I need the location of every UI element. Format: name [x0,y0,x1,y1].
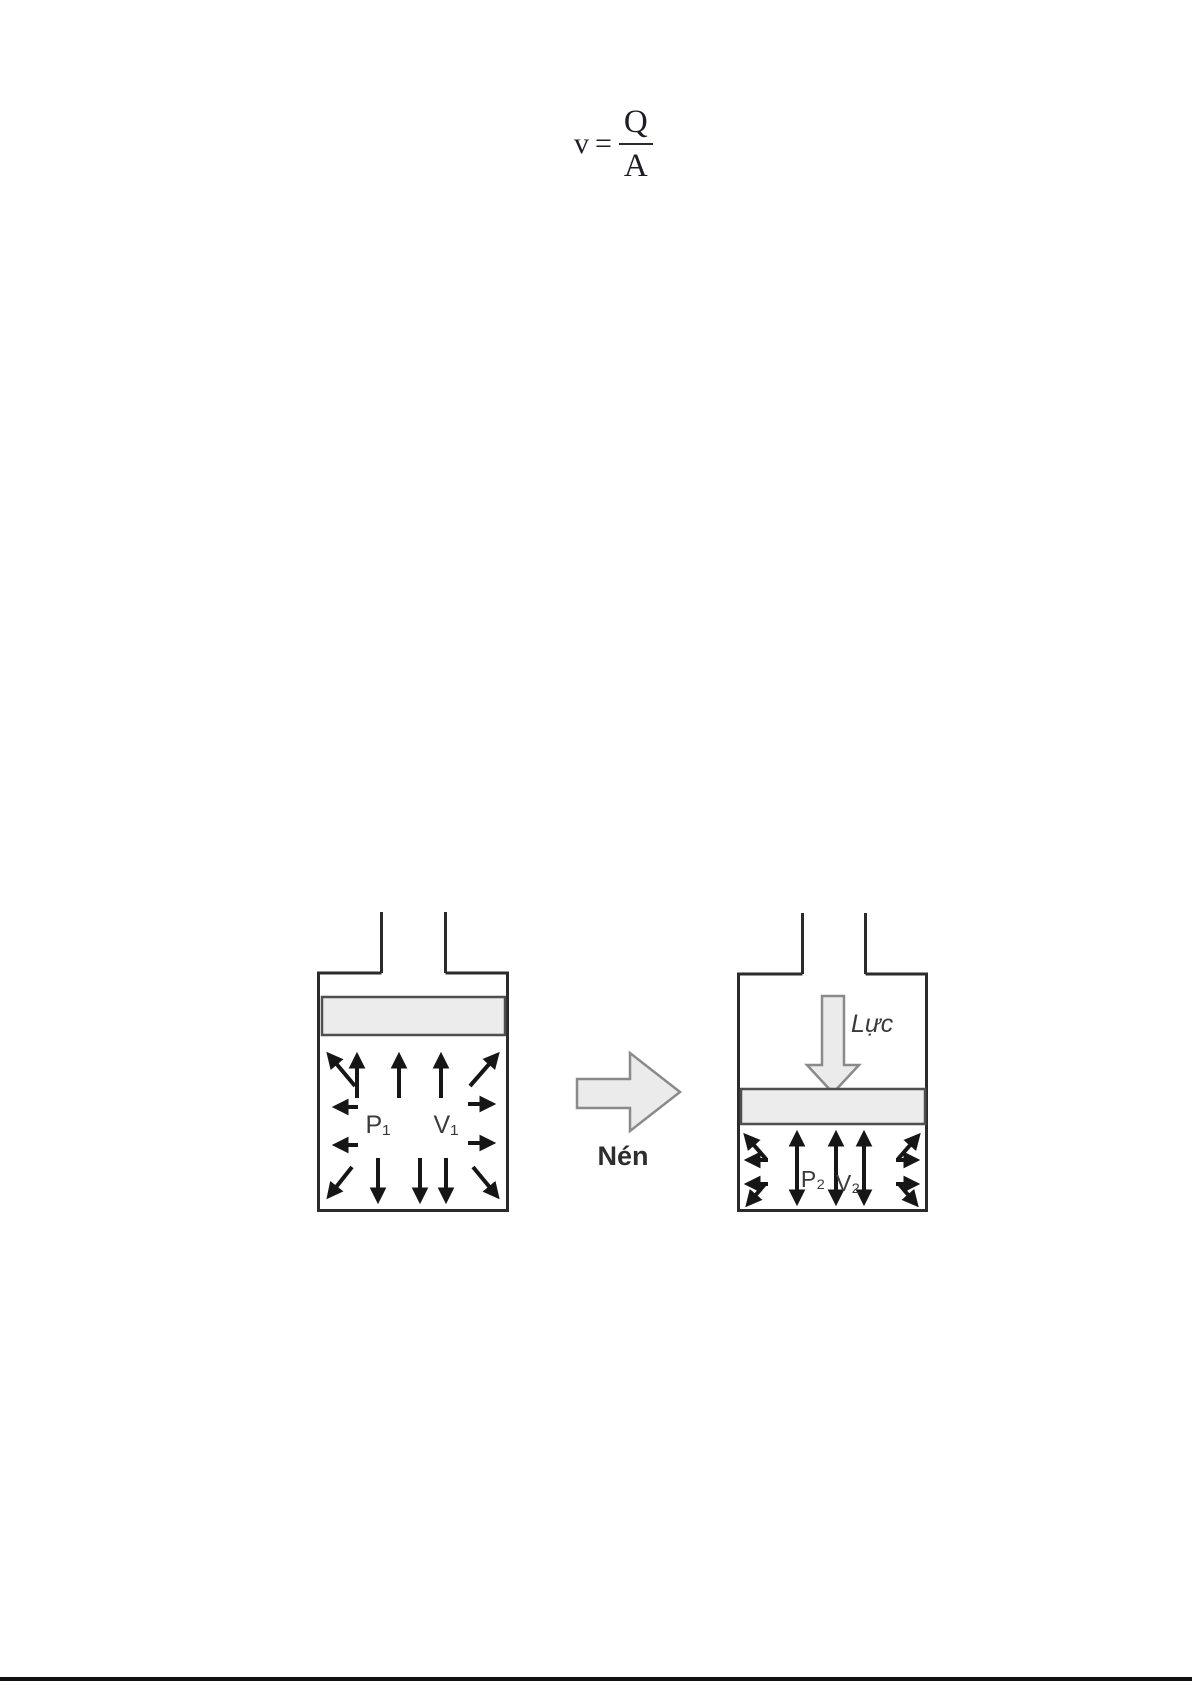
gas-arrow [473,1167,497,1196]
gas-arrow [898,1183,916,1204]
inlet-pipe-before [382,912,446,973]
document-page: v = Q A [0,0,1192,1685]
cylinder-before-group [319,912,508,1211]
compress-arrow-icon [577,1053,680,1131]
gas-arrow [746,1136,766,1159]
compress-arrow-label: Nén [597,1141,648,1171]
pressure-label-before: P₁ [365,1111,390,1139]
volume-label-after: V₂ [836,1170,860,1196]
gas-arrows-before [329,1055,497,1200]
piston-after [741,1089,925,1124]
volume-label-before: V₁ [433,1111,458,1139]
gas-arrow [898,1136,918,1159]
page-bottom-border [0,1677,1192,1681]
piston-before [322,997,505,1035]
gas-arrow [748,1183,766,1204]
compression-diagram: P₁ V₁ Nén Lực [0,0,1192,1685]
gas-arrows-after [746,1134,918,1204]
gas-arrow [329,1167,352,1196]
inlet-pipe-after [803,913,866,974]
pressure-label-after: P₂ [801,1166,825,1192]
force-label: Lực [851,1010,894,1038]
gas-arrow [470,1055,497,1086]
gas-arrow [329,1055,355,1086]
